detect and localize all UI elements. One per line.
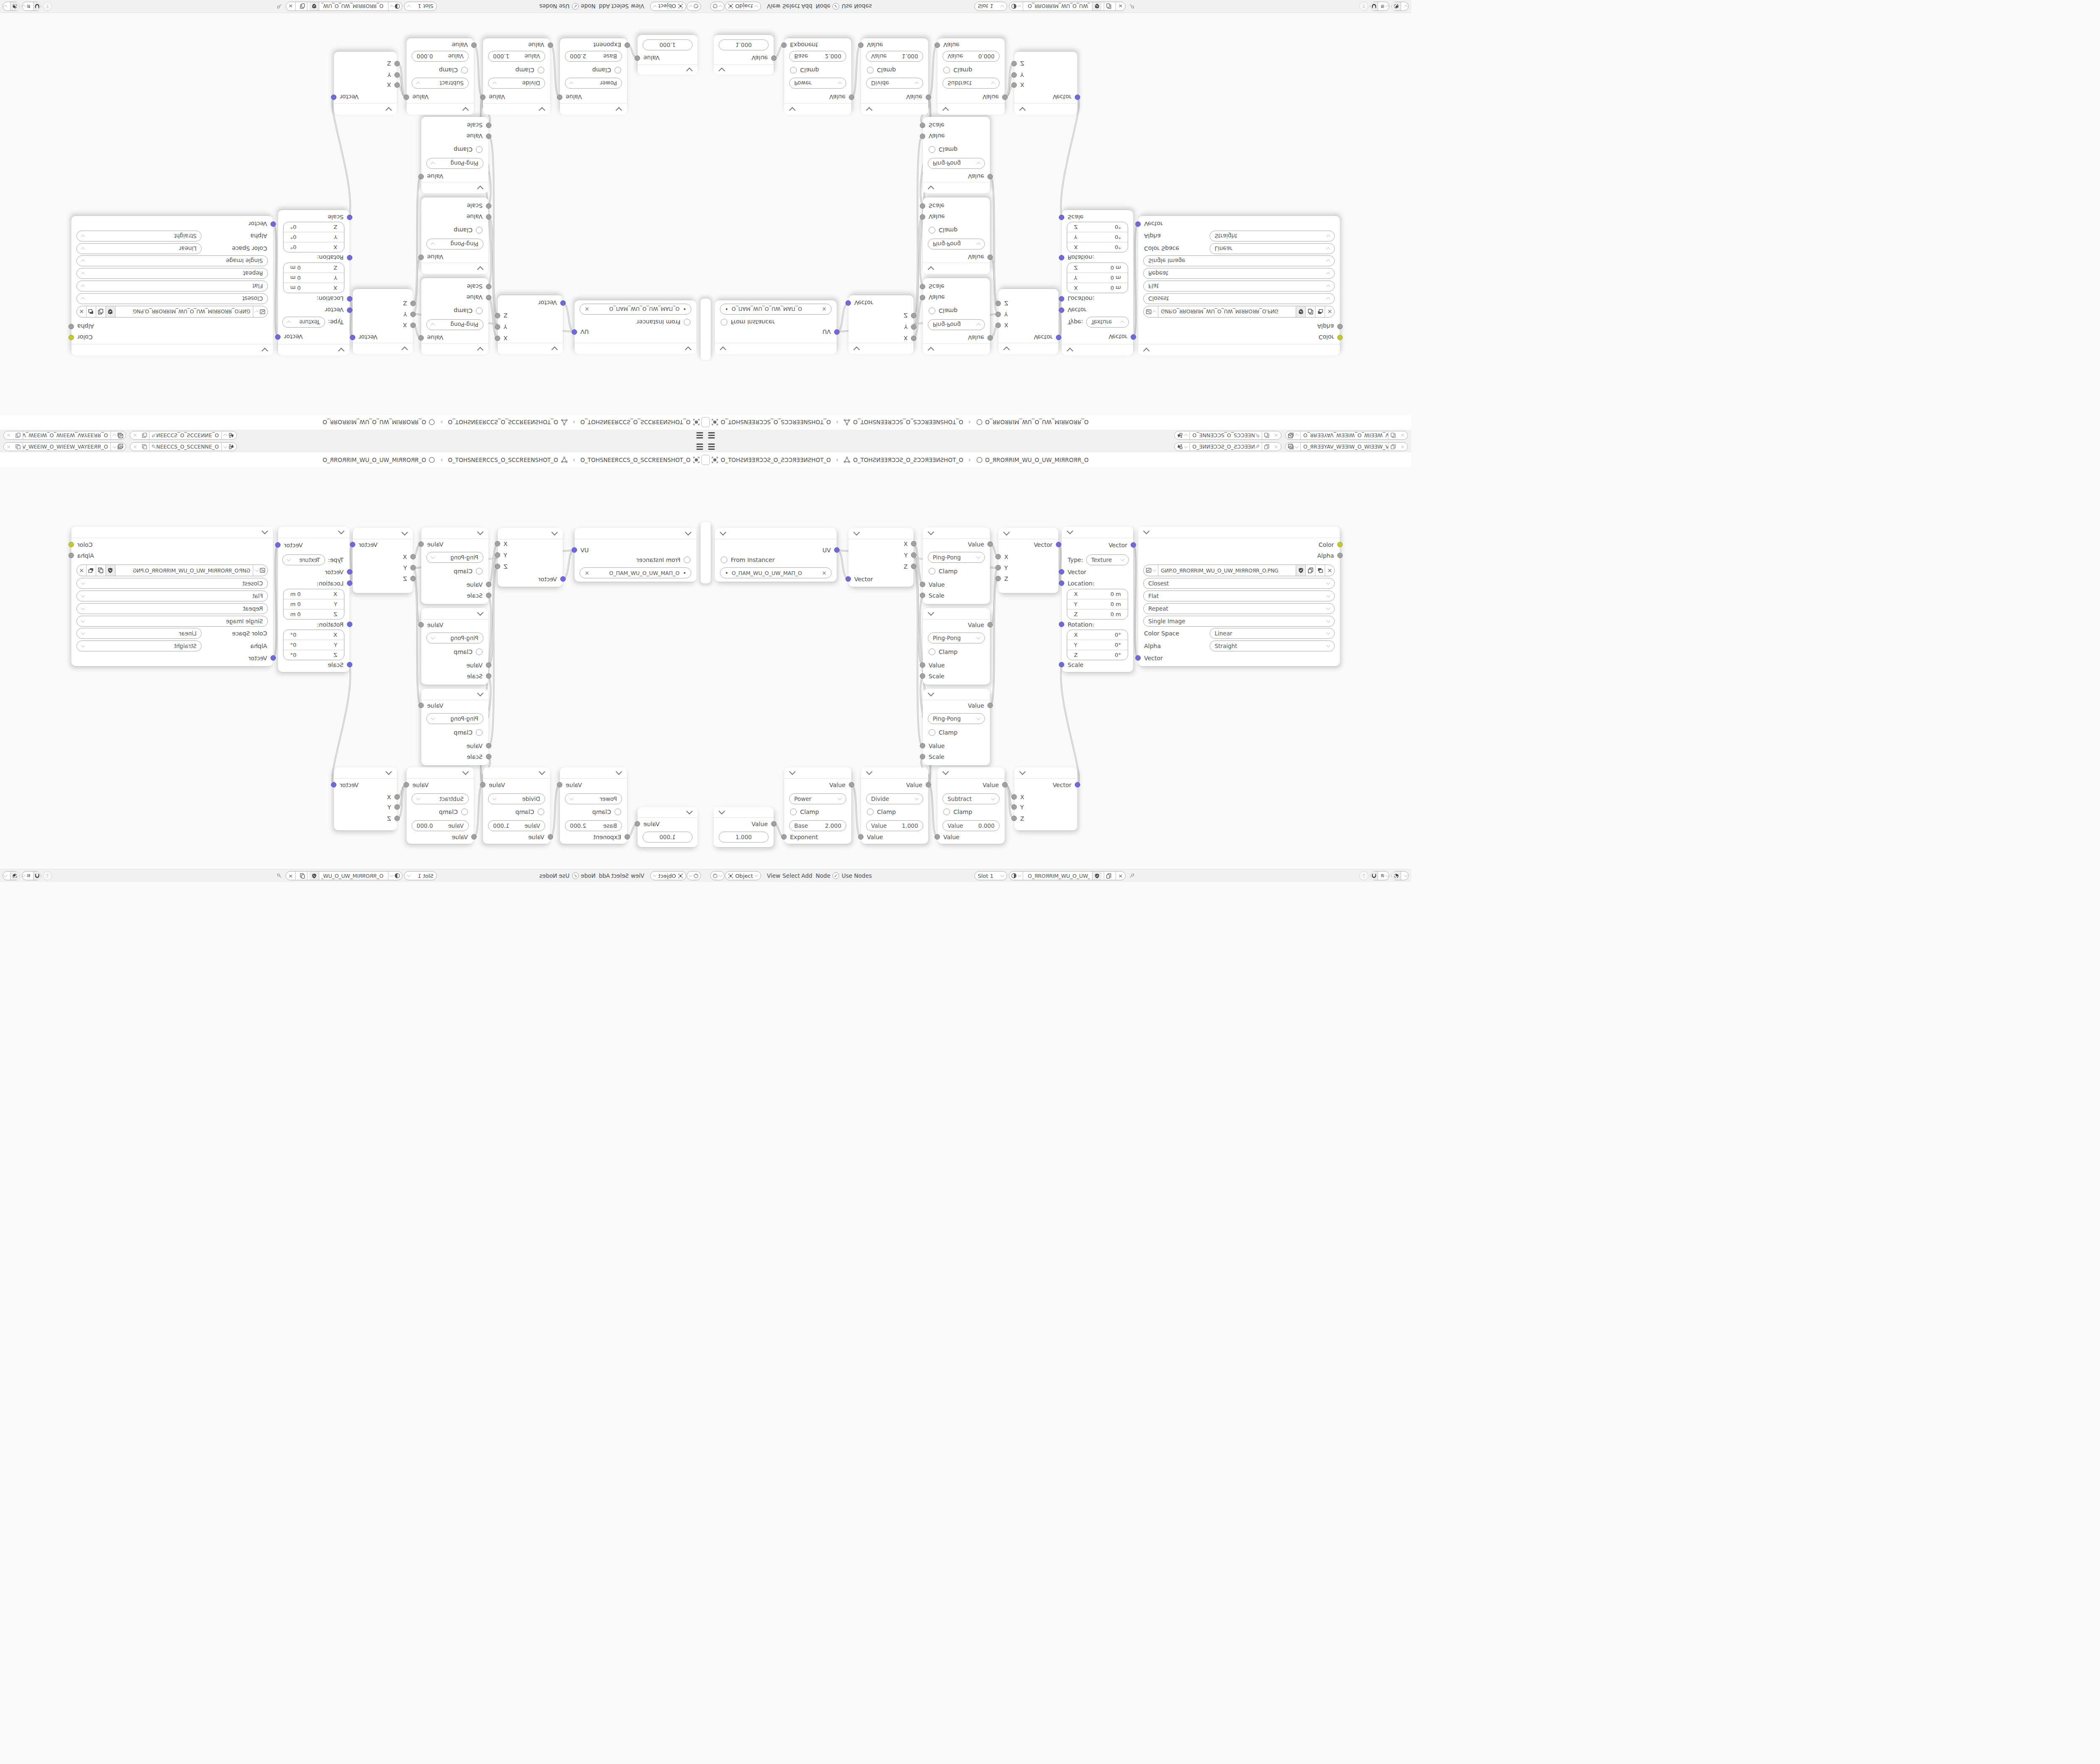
checkbox-circle-icon[interactable]: [476, 729, 483, 736]
value-output-socket[interactable]: [418, 174, 424, 179]
menu-select[interactable]: Select: [782, 869, 800, 882]
vector-output-socket[interactable]: [1056, 335, 1061, 340]
breadcrumb-object[interactable]: O_TOHƧИƎƎЯƆƆƧ_O_ƧƆƆЯƎƎИƧHOT_O: [580, 419, 690, 426]
node-collapse[interactable]: [715, 528, 837, 539]
node-mapping[interactable]: Vector Type: Texture Vector Location: X0…: [278, 527, 349, 672]
scene-name[interactable]: O_ƎИИƎƆƆƧ_O_ƧƆƆƎƎИ...: [157, 432, 221, 438]
copy-icon[interactable]: [140, 443, 150, 451]
chevron-down-icon[interactable]: [477, 347, 484, 354]
fake-user-shield-icon[interactable]: [1092, 2, 1102, 10]
chevron-down-icon[interactable]: [338, 348, 345, 354]
vector-output-socket[interactable]: [275, 542, 281, 548]
chevron-down-icon[interactable]: [1019, 769, 1026, 775]
projection-dropdown[interactable]: Flat: [1143, 591, 1335, 601]
image-datablock-selector[interactable]: O_ЯROЯRIM_WU_O_UW_MIЯROЯR_O ×: [1009, 2, 1126, 11]
scale-input-socket[interactable]: [486, 284, 491, 289]
node-math-subtract[interactable]: Value Subtract Clamp Value0.000 Value: [937, 767, 1005, 844]
unlink-icon[interactable]: ×: [130, 444, 140, 450]
magnet-icon[interactable]: [1370, 2, 1378, 10]
vector-output-socket[interactable]: [1075, 782, 1080, 787]
node-collapse[interactable]: [421, 608, 488, 619]
node-collapse[interactable]: [334, 103, 397, 115]
node-collapse[interactable]: [421, 343, 488, 354]
slot-dropdown[interactable]: Slot 1: [404, 871, 437, 880]
area-corner-widget[interactable]: [706, 455, 710, 465]
clamp-checkbox[interactable]: Clamp: [929, 729, 958, 736]
location-y-field[interactable]: Y0 m: [283, 599, 344, 609]
node-math-divide[interactable]: Value Divide Clamp Value1.000 Value: [483, 38, 550, 115]
pin-icon[interactable]: [151, 433, 157, 438]
clipped-node-sliver[interactable]: [706, 522, 711, 583]
z-input-socket[interactable]: [1011, 61, 1017, 66]
x-input-socket[interactable]: [995, 554, 1001, 559]
checkbox-circle-icon[interactable]: [929, 146, 935, 153]
separate-z-socket[interactable]: [911, 564, 916, 569]
node-collapse[interactable]: [937, 103, 1005, 115]
node-mapping[interactable]: Vector Type: Texture Vector Location: X0…: [1062, 210, 1133, 355]
location-y-field[interactable]: Y0 m: [1067, 599, 1128, 609]
checkbox-circle-icon[interactable]: [867, 808, 874, 815]
breadcrumb-object[interactable]: O_TOHƧИƎƎЯƆƆƧ_O_ƧƆƆЯƎƎИƧHOT_O: [721, 457, 831, 463]
rotation-x-field[interactable]: X0°: [283, 630, 344, 640]
operation-dropdown[interactable]: Ping-Pong: [426, 552, 483, 563]
chevron-down-icon[interactable]: [616, 107, 622, 114]
scale-input-socket[interactable]: [1059, 215, 1064, 220]
node-collapse[interactable]: [483, 103, 550, 115]
area-corner-widget[interactable]: [701, 417, 706, 427]
chevron-down-icon[interactable]: [616, 769, 622, 775]
dropdown-segment[interactable]: [3, 5, 8, 7]
z-input-socket[interactable]: [995, 576, 1001, 581]
clamp-checkbox[interactable]: Clamp: [454, 729, 483, 736]
operation-dropdown[interactable]: Ping-Pong: [426, 158, 483, 169]
chevron-down-icon[interactable]: [928, 186, 934, 192]
checkbox-circle-icon[interactable]: [929, 648, 935, 655]
chevron-down-icon[interactable]: [686, 808, 693, 815]
clamp-checkbox[interactable]: Clamp: [929, 146, 958, 153]
clear-uvmap-icon[interactable]: ×: [585, 570, 589, 576]
checkbox-circle-icon[interactable]: [943, 808, 950, 815]
y-input-socket[interactable]: [410, 312, 416, 317]
chevron-down-icon[interactable]: [262, 528, 268, 535]
x-input-socket[interactable]: [995, 323, 1001, 328]
base-value-field[interactable]: Base2.000: [565, 51, 622, 62]
node-collapse[interactable]: [278, 344, 349, 355]
snapping-control[interactable]: [1370, 871, 1389, 880]
checkbox-circle-icon[interactable]: [721, 319, 727, 325]
x-input-socket[interactable]: [410, 554, 416, 559]
interpolation-dropdown[interactable]: Closest: [1143, 578, 1335, 589]
editor-type-dropdown[interactable]: [710, 871, 724, 880]
separate-x-socket[interactable]: [495, 541, 500, 546]
node-collapse[interactable]: [498, 528, 563, 539]
rotation-xyz-fields[interactable]: X0° Y0° Z0°: [1067, 222, 1128, 252]
checkbox-circle-icon[interactable]: [684, 556, 690, 563]
location-input-socket[interactable]: [1059, 580, 1064, 586]
mapping-type-dropdown[interactable]: Texture: [282, 554, 325, 565]
node-math-ping-pong-3[interactable]: Value Ping-Pong Clamp Value Scale: [923, 689, 990, 765]
node-collapse[interactable]: [421, 689, 488, 700]
location-xyz-fields[interactable]: X0 m Y0 m Z0 m: [1067, 262, 1128, 293]
vector-output-socket[interactable]: [1131, 542, 1136, 548]
slot-dropdown[interactable]: Slot 1: [974, 2, 1007, 11]
projection-dropdown[interactable]: Flat: [76, 591, 268, 601]
node-math-power[interactable]: Value Power Clamp Base2.000 Exponent: [560, 767, 627, 844]
checkbox-circle-icon[interactable]: [929, 227, 935, 234]
unlink-image-icon[interactable]: ×: [1325, 306, 1334, 317]
value-output-socket[interactable]: [1002, 782, 1008, 787]
pin-icon[interactable]: [1255, 433, 1260, 438]
scene-selector[interactable]: O_ƎИИƎƆƆƧ_O_ƧƆƆƎƎИ... ×: [130, 442, 237, 451]
pack-image-icon[interactable]: [87, 306, 96, 317]
menu-add[interactable]: Add: [801, 869, 812, 882]
source-dropdown[interactable]: Single Image: [1143, 616, 1335, 627]
overlays-control[interactable]: [1391, 2, 1409, 11]
copy-datablock-icon[interactable]: [298, 2, 307, 10]
checkbox-circle-icon[interactable]: [614, 67, 621, 73]
vector-output-socket[interactable]: [331, 782, 336, 787]
unlink-image-icon[interactable]: ×: [1116, 2, 1125, 10]
mapping-type-dropdown[interactable]: Texture: [282, 317, 325, 328]
node-math-ping-pong-3[interactable]: Value Ping-Pong Clamp Value Scale: [923, 117, 990, 193]
value-input-socket[interactable]: [486, 134, 491, 139]
value-input-socket[interactable]: [920, 214, 925, 220]
color-output-socket[interactable]: [68, 542, 74, 547]
node-mapping[interactable]: Vector Type: Texture Vector Location: X0…: [278, 210, 349, 355]
source-dropdown[interactable]: Single Image: [76, 255, 268, 266]
node-collapse[interactable]: [923, 182, 990, 193]
clear-uvmap-icon[interactable]: ×: [822, 306, 827, 312]
location-x-field[interactable]: X0 m: [283, 589, 344, 599]
from-instancer-checkbox[interactable]: From Instancer: [721, 556, 774, 563]
clamp-checkbox[interactable]: Clamp: [454, 146, 483, 153]
value-output-socket[interactable]: [849, 94, 854, 100]
chevron-down-icon[interactable]: [539, 769, 546, 775]
chevron-down-icon[interactable]: [928, 347, 934, 354]
copy-datablock-icon[interactable]: [1305, 306, 1315, 317]
node-math-ping-pong-1[interactable]: Value Ping-Pong Clamp Value Scale: [923, 528, 990, 604]
value-output-socket[interactable]: [635, 821, 640, 827]
value-output-socket[interactable]: [926, 782, 931, 787]
snap-mode-icon[interactable]: [22, 4, 31, 9]
image-browse-icon[interactable]: [388, 2, 402, 10]
node-separate-xyz[interactable]: X Y Z Vector: [498, 528, 563, 587]
rotation-x-field[interactable]: X0°: [1067, 242, 1128, 252]
value-output-socket[interactable]: [418, 335, 424, 341]
chevron-down-icon[interactable]: [685, 529, 692, 536]
uv-output-socket[interactable]: [572, 329, 577, 335]
dropdown-segment[interactable]: [1403, 5, 1408, 7]
rotation-z-field[interactable]: Z0°: [283, 650, 344, 660]
image-browse-icon[interactable]: [253, 565, 268, 576]
operation-dropdown[interactable]: Subtract: [412, 78, 469, 89]
chevron-down-icon[interactable]: [928, 266, 934, 273]
separate-z-socket[interactable]: [495, 313, 500, 318]
operation-dropdown[interactable]: Power: [789, 78, 846, 89]
color-output-socket[interactable]: [68, 335, 74, 340]
chevron-down-icon[interactable]: [789, 769, 796, 775]
node-math-ping-pong-2[interactable]: Value Ping-Pong Clamp Value Scale: [421, 608, 488, 685]
extension-dropdown[interactable]: Repeat: [1143, 268, 1335, 279]
image-datablock-field[interactable]: GИP.O_ЯROЯRIM_WU_O_UW_MIЯROЯR_O.PNG ×: [1143, 564, 1335, 576]
value-output-socket[interactable]: [418, 703, 424, 708]
vector-output-socket[interactable]: [1131, 334, 1136, 340]
location-xyz-fields[interactable]: X0 m Y0 m Z0 m: [1067, 589, 1128, 619]
value-output-socket[interactable]: [480, 782, 486, 787]
checkbox-circle-icon[interactable]: [929, 568, 935, 575]
scale-input-socket[interactable]: [486, 754, 491, 759]
chevron-down-icon[interactable]: [942, 769, 949, 775]
node-collapse[interactable]: [575, 343, 696, 354]
image-browse-icon[interactable]: [388, 871, 402, 880]
node-collapse[interactable]: [1138, 344, 1340, 355]
scene-name[interactable]: O_ƎИИƎƆƆƧ_O_ƧƆƆƎƎИ...: [157, 444, 221, 450]
z-input-socket[interactable]: [410, 301, 416, 306]
y-input-socket[interactable]: [394, 72, 400, 78]
use-nodes-checkbox[interactable]: ✓ Use Nodes: [832, 0, 872, 13]
operation-dropdown[interactable]: Ping-Pong: [426, 713, 483, 724]
node-image-texture[interactable]: Color Alpha GИP.O_ЯROЯRIM_WU_O_UW_MIЯROЯ…: [1138, 527, 1340, 666]
colorspace-dropdown[interactable]: Linear: [1210, 243, 1335, 254]
value-input-socket[interactable]: [858, 834, 864, 840]
location-x-field[interactable]: X0 m: [1067, 283, 1128, 293]
location-z-field[interactable]: Z0 m: [283, 609, 344, 619]
clamp-checkbox[interactable]: Clamp: [454, 227, 483, 234]
node-collapse[interactable]: [937, 767, 1005, 779]
node-canvas[interactable]: UV From Instancer • O_ПAM_WU_O_UW_MAП_O …: [706, 13, 1411, 415]
chevron-down-icon[interactable]: [402, 346, 408, 353]
operation-dropdown[interactable]: Subtract: [942, 78, 1000, 89]
location-z-field[interactable]: Z0 m: [283, 263, 344, 273]
node-combine-xyz-bottom[interactable]: Vector X Y Z: [334, 52, 397, 115]
chevron-down-icon[interactable]: [1143, 528, 1150, 535]
image-datablock-field[interactable]: GИP.O_ЯROЯRIM_WU_O_UW_MIЯROЯR_O.PNG ×: [1143, 306, 1335, 318]
value-output-socket[interactable]: [557, 782, 562, 787]
colorspace-dropdown[interactable]: Linear: [76, 628, 202, 639]
node-collapse[interactable]: [353, 343, 413, 354]
menu-node[interactable]: Node: [816, 869, 830, 882]
fake-user-shield-icon[interactable]: [310, 2, 319, 10]
menu-add[interactable]: Add: [801, 0, 812, 13]
checkbox-circle-icon[interactable]: [614, 808, 621, 815]
node-math-subtract[interactable]: Value Subtract Clamp Value0.000 Value: [407, 38, 474, 115]
scene-selector[interactable]: O_ƎИИƎƆƆƧ_O_ƧƆƆƎƎИ... ×: [1174, 431, 1281, 440]
slot-dropdown[interactable]: Slot 1: [404, 2, 437, 11]
image-datablock-selector[interactable]: O_ЯROЯRIM_WU_O_UW_MIЯROЯR_O ×: [286, 2, 402, 11]
operation-dropdown[interactable]: Ping-Pong: [426, 239, 483, 249]
viewlayer-selector[interactable]: O_ЯRƎƎYAV_WƎƎIW_O_WIƎƎW_VAYƎƎRЯ_O ×: [1285, 442, 1408, 451]
subtract-value-field[interactable]: Value0.000: [942, 820, 1000, 831]
unlink-icon[interactable]: ×: [4, 432, 13, 438]
scale-input-socket[interactable]: [486, 203, 491, 209]
node-collapse[interactable]: [715, 343, 837, 354]
breadcrumb-mesh[interactable]: O_TOHƧИƎƎЯƆƆƧ_O_ƧƆƆЯƎƎИƧHOT_O: [853, 457, 963, 463]
value-input-socket[interactable]: [486, 582, 491, 587]
breadcrumb-material[interactable]: O_ЯROЯRIM_WU_O_UW_MIЯROЯR_O: [985, 419, 1089, 426]
operation-dropdown[interactable]: Power: [565, 78, 622, 89]
node-collapse[interactable]: [421, 528, 488, 539]
node-math-ping-pong-1[interactable]: Value Ping-Pong Clamp Value Scale: [421, 528, 488, 604]
location-input-socket[interactable]: [347, 296, 352, 302]
gpu-update-arrow-button[interactable]: ↑: [1359, 871, 1368, 880]
node-mapping[interactable]: Vector Type: Texture Vector Location: X0…: [1062, 527, 1133, 672]
node-image-texture[interactable]: Color Alpha GИP.O_ЯROЯRIM_WU_O_UW_MIЯROЯ…: [71, 216, 273, 355]
copy-datablock-icon[interactable]: [298, 871, 307, 880]
breadcrumb-material[interactable]: O_ЯROЯRIM_WU_O_UW_MIЯROЯR_O: [323, 457, 426, 463]
value-input-socket[interactable]: [934, 834, 940, 840]
value-output-socket[interactable]: [771, 821, 777, 827]
menu-view[interactable]: View: [631, 869, 644, 882]
proportional-edit-icon[interactable]: [1391, 871, 1401, 880]
operation-dropdown[interactable]: Ping-Pong: [928, 552, 985, 563]
snap-mode-icon[interactable]: [1380, 873, 1389, 878]
checkbox-circle-icon[interactable]: [684, 319, 690, 325]
node-value[interactable]: Value 1.000: [714, 807, 774, 847]
operation-dropdown[interactable]: Divide: [488, 78, 545, 89]
copy-datablock-icon[interactable]: [96, 565, 106, 576]
chevron-down-icon[interactable]: [262, 348, 268, 354]
menu-hamburger-icon[interactable]: [696, 444, 703, 450]
viewlayer-selector[interactable]: O_ЯRƎƎYAV_WƎƎIW_O_WIƎƎW_VAYƎƎRЯ_O ×: [1285, 431, 1408, 440]
scale-input-socket[interactable]: [920, 673, 925, 679]
x-input-socket[interactable]: [410, 323, 416, 328]
chevron-down-icon[interactable]: [462, 769, 469, 775]
checkbox-circle-icon[interactable]: [867, 67, 874, 73]
use-nodes-checkbox[interactable]: ✓ Use Nodes: [539, 869, 579, 882]
scale-input-socket[interactable]: [920, 593, 925, 598]
value-output-socket[interactable]: [480, 94, 486, 100]
uvmap-name-field[interactable]: • O_ПAM_WU_O_UW_MAП_O ×: [580, 304, 691, 315]
unlink-image-icon[interactable]: ×: [1116, 871, 1125, 880]
checkbox-circle-icon[interactable]: [538, 808, 544, 815]
checkbox-circle-icon[interactable]: [476, 227, 483, 234]
operation-dropdown[interactable]: Ping-Pong: [928, 713, 985, 724]
node-collapse[interactable]: [923, 689, 990, 700]
chevron-down-icon[interactable]: [685, 346, 692, 353]
chevron-down-icon[interactable]: [720, 346, 727, 353]
node-math-ping-pong-1[interactable]: Value Ping-Pong Clamp Value Scale: [421, 278, 488, 354]
editor-type-dropdown[interactable]: [710, 2, 724, 11]
chevron-down-icon[interactable]: [477, 266, 484, 273]
menu-view[interactable]: View: [767, 0, 780, 13]
node-collapse[interactable]: [714, 64, 774, 75]
mapping-type-dropdown[interactable]: Texture: [1086, 554, 1129, 565]
subtract-value-field[interactable]: Value0.000: [412, 820, 469, 831]
value-input-socket[interactable]: [934, 42, 940, 48]
pack-image-icon[interactable]: [1315, 565, 1325, 576]
chevron-down-icon[interactable]: [402, 529, 408, 536]
chevron-down-icon[interactable]: [866, 107, 873, 114]
unlink-icon[interactable]: ×: [1398, 444, 1407, 450]
value-output-socket[interactable]: [418, 255, 424, 260]
location-input-socket[interactable]: [347, 580, 352, 586]
from-instancer-checkbox[interactable]: From Instancer: [637, 556, 690, 563]
color-output-socket[interactable]: [1337, 335, 1343, 340]
magnet-icon[interactable]: [1370, 871, 1378, 880]
operation-dropdown[interactable]: Subtract: [412, 793, 469, 804]
unlink-icon[interactable]: ×: [1398, 432, 1407, 438]
vector-output-socket[interactable]: [275, 334, 281, 340]
node-collapse[interactable]: [998, 343, 1058, 354]
value-field[interactable]: 1.000: [643, 39, 693, 50]
from-instancer-checkbox[interactable]: From Instancer: [721, 319, 774, 325]
snap-mode-icon[interactable]: [1380, 4, 1389, 9]
node-collapse[interactable]: [71, 527, 273, 538]
vector-input-socket[interactable]: [270, 221, 276, 227]
fake-user-shield-icon[interactable]: [1296, 306, 1305, 317]
vector-output-socket[interactable]: [1056, 542, 1061, 547]
viewlayer-selector[interactable]: O_ЯRƎƎYAV_WƎƎIW_O_WIƎƎW_VAYƎƎRЯ_O ×: [3, 442, 126, 451]
separate-vector-socket[interactable]: [560, 576, 566, 582]
node-collapse[interactable]: [1014, 767, 1077, 779]
value-output-socket[interactable]: [404, 782, 409, 787]
rotation-input-socket[interactable]: [1059, 622, 1064, 627]
shader-mode-dropdown[interactable]: Object: [650, 871, 686, 880]
checkbox-circle-icon[interactable]: [721, 556, 727, 563]
chevron-down-icon[interactable]: [338, 528, 345, 535]
rotation-input-socket[interactable]: [347, 255, 352, 260]
node-collapse[interactable]: [923, 608, 990, 619]
location-y-field[interactable]: Y0 m: [1067, 273, 1128, 283]
clipped-node-sliver[interactable]: [701, 299, 706, 360]
node-collapse[interactable]: [483, 767, 550, 779]
copy-datablock-icon[interactable]: [1104, 2, 1113, 10]
rotation-xyz-fields[interactable]: X0° Y0° Z0°: [283, 630, 344, 660]
node-uv-map[interactable]: UV From Instancer • O_ПAM_WU_O_UW_MAП_O …: [575, 300, 696, 354]
pin-icon[interactable]: [276, 873, 282, 879]
gpu-update-arrow-button[interactable]: ↑: [43, 871, 52, 880]
base-value-field[interactable]: Base2.000: [565, 820, 622, 831]
chevron-down-icon[interactable]: [1067, 348, 1074, 354]
value-field[interactable]: 1.000: [643, 832, 693, 843]
scene-selector[interactable]: O_ƎИИƎƆƆƧ_O_ƧƆƆƎƎИ... ×: [1174, 442, 1281, 451]
rotation-xyz-fields[interactable]: X0° Y0° Z0°: [1067, 630, 1128, 660]
menu-hamburger-icon[interactable]: [708, 444, 715, 450]
colorspace-dropdown[interactable]: Linear: [1210, 628, 1335, 639]
node-math-ping-pong-1[interactable]: Value Ping-Pong Clamp Value Scale: [923, 278, 990, 354]
clear-uvmap-icon[interactable]: ×: [585, 306, 589, 312]
node-collapse[interactable]: [861, 103, 928, 115]
checkbox-check-icon[interactable]: ✓: [572, 872, 579, 879]
alpha-mode-dropdown[interactable]: Straight: [76, 640, 202, 651]
copy-icon[interactable]: [13, 431, 23, 439]
separate-z-socket[interactable]: [911, 313, 916, 318]
uv-output-socket[interactable]: [572, 547, 577, 553]
node-collapse[interactable]: [638, 64, 698, 75]
y-input-socket[interactable]: [410, 565, 416, 570]
node-math-ping-pong-3[interactable]: Value Ping-Pong Clamp Value Scale: [421, 117, 488, 193]
checkbox-circle-icon[interactable]: [790, 67, 797, 73]
rotation-y-field[interactable]: Y0°: [283, 232, 344, 242]
chevron-down-icon[interactable]: [1067, 528, 1074, 535]
value-output-socket[interactable]: [404, 94, 409, 100]
shader-mode-dropdown[interactable]: Object: [725, 871, 761, 880]
clamp-checkbox[interactable]: Clamp: [790, 808, 819, 815]
chevron-down-icon[interactable]: [477, 529, 484, 535]
node-collapse[interactable]: [714, 807, 774, 818]
menu-hamburger-icon[interactable]: [696, 432, 703, 438]
node-math-divide[interactable]: Value Divide Clamp Value1.000 Value: [861, 767, 928, 844]
node-image-texture[interactable]: Color Alpha GИP.O_ЯROЯRIM_WU_O_UW_MIЯROЯ…: [1138, 216, 1340, 355]
value-output-socket[interactable]: [771, 55, 777, 61]
checkbox-circle-icon[interactable]: [476, 146, 483, 153]
node-collapse[interactable]: [784, 767, 851, 779]
rotation-x-field[interactable]: X0°: [1067, 630, 1128, 640]
separate-x-socket[interactable]: [495, 336, 500, 341]
chevron-down-icon[interactable]: [551, 529, 558, 536]
x-input-socket[interactable]: [1011, 82, 1017, 88]
operation-dropdown[interactable]: Divide: [866, 793, 923, 804]
